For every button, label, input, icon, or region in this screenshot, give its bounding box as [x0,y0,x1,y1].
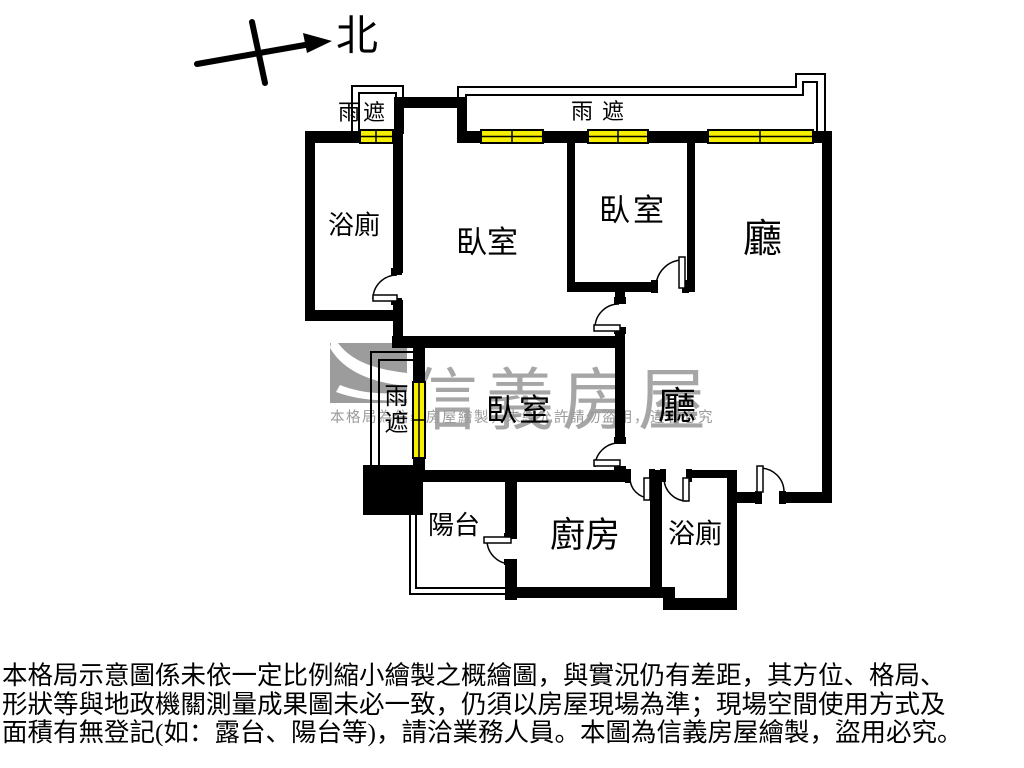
room-label-bedroom-main: 臥室 [456,227,518,258]
room-label-balcony: 陽台 [428,513,480,539]
canopy-label-top-center: 雨遮 [571,101,633,123]
structure-block [363,465,423,515]
floorplan-drawing [0,0,1024,768]
disclaimer-line-1: 本格局示意圖係未依一定比例縮小繪製之概繪圖，與實況仍有差距，其方位、格局、 [2,662,1024,691]
disclaimer-text: 本格局示意圖係未依一定比例縮小繪製之概繪圖，與實況仍有差距，其方位、格局、 形狀… [2,662,1024,748]
window-bedroom-lower-side [413,382,425,458]
north-label: 北 [336,16,378,58]
door-bedroom-main [594,304,620,331]
canopy-outline-top [458,74,825,131]
room-label-bathroom-top: 浴廁 [328,213,380,239]
north-arrow-icon [197,22,332,83]
room-label-bathroom-bottom: 浴廁 [668,521,722,548]
door-main-entrance [757,466,784,492]
room-label-kitchen: 廚房 [550,518,620,553]
room-label-bedroom-top: 臥室 [599,195,667,226]
window-living-top [708,130,813,143]
canopy-label-side: 雨遮 [381,383,405,437]
window-bathroom-top [360,130,393,143]
door-bedroom-top [656,257,685,288]
door-kitchen [630,478,650,500]
room-label-bedroom-lower: 臥室 [486,395,552,426]
canopy-label-top-left: 雨遮 [338,102,388,124]
room-label-living-top: 廳 [743,220,782,259]
disclaimer-line-2: 形狀等與地政機關測量成果圖未必一致，仍須以房屋現場為準；現場空間使用方式及 [2,691,1024,720]
door-bathroom-bottom [664,478,689,501]
disclaimer-line-3: 面積有無登記(如：露台、陽台等)，請洽業務人員。本圖為信義房屋繪製，盜用必究。 [2,719,1024,748]
room-label-living-lower: 廳 [658,388,696,426]
window-bedroom-main [481,130,543,143]
door-bedroom-lower [594,443,620,467]
floorplan-page: 信義房屋 本格局為信義房屋繪製，未經允許請勿盜用，違者必究 [0,0,1024,768]
door-bathroom-top [373,275,397,301]
window-bedroom-top [588,130,648,143]
